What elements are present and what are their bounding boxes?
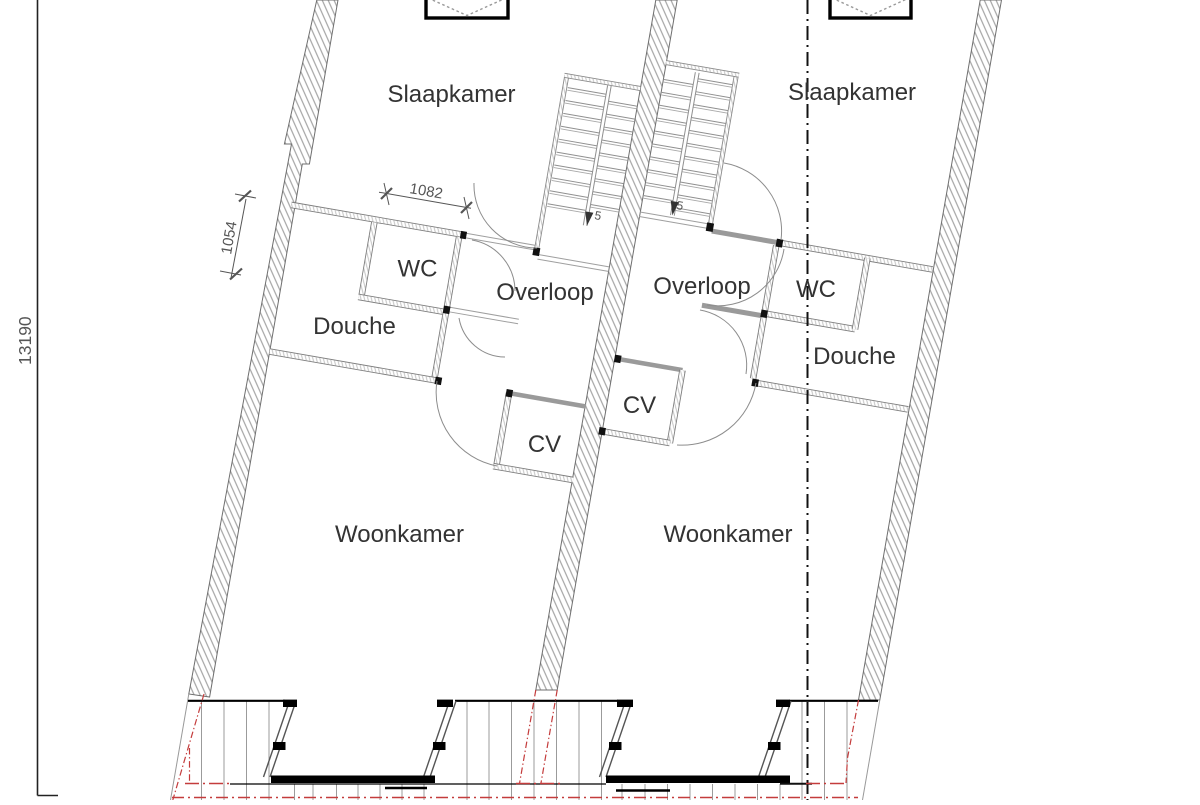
svg-text:Slaapkamer: Slaapkamer <box>788 79 916 106</box>
svg-text:Overloop: Overloop <box>496 279 593 306</box>
svg-text:Slaapkamer: Slaapkamer <box>387 81 515 108</box>
svg-text:Overloop: Overloop <box>653 273 750 300</box>
svg-text:WC: WC <box>796 276 836 303</box>
svg-text:CV: CV <box>623 392 656 419</box>
svg-text:Woonkamer: Woonkamer <box>335 521 464 548</box>
svg-text:13190: 13190 <box>15 316 35 365</box>
svg-text:Douche: Douche <box>313 313 396 340</box>
svg-text:Douche: Douche <box>813 343 896 370</box>
svg-text:WC: WC <box>398 256 438 283</box>
svg-text:CV: CV <box>528 431 561 458</box>
svg-text:Woonkamer: Woonkamer <box>664 521 793 548</box>
